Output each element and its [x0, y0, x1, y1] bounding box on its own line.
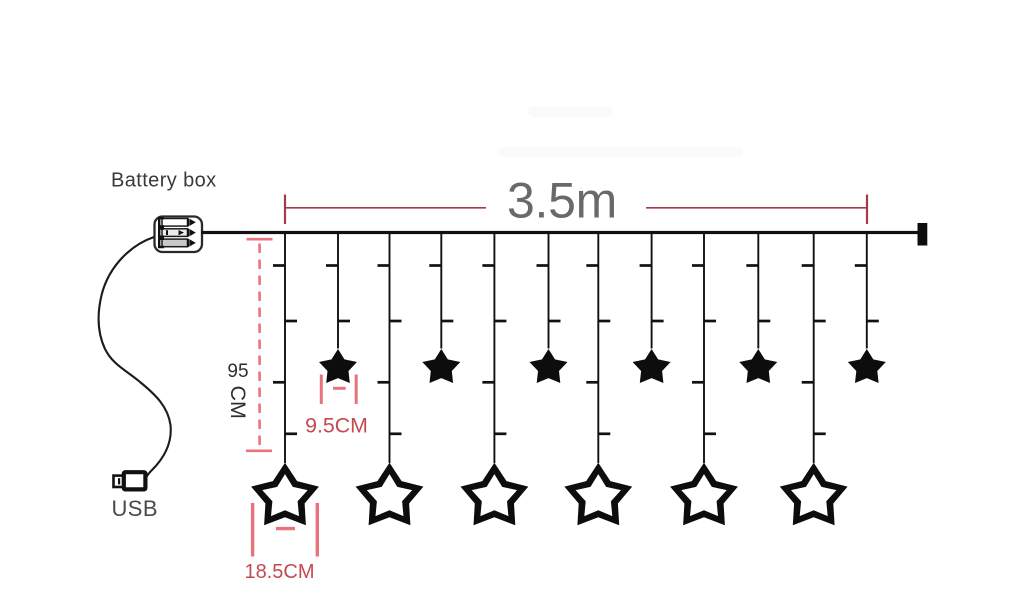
- svg-text:USB: USB: [112, 496, 158, 521]
- svg-text:CM: CM: [226, 386, 250, 419]
- svg-text:95: 95: [227, 361, 248, 382]
- svg-text:9.5CM: 9.5CM: [305, 414, 368, 438]
- svg-text:3.5m: 3.5m: [507, 173, 617, 229]
- svg-text:Battery box: Battery box: [111, 170, 217, 192]
- svg-text:18.5CM: 18.5CM: [244, 561, 314, 583]
